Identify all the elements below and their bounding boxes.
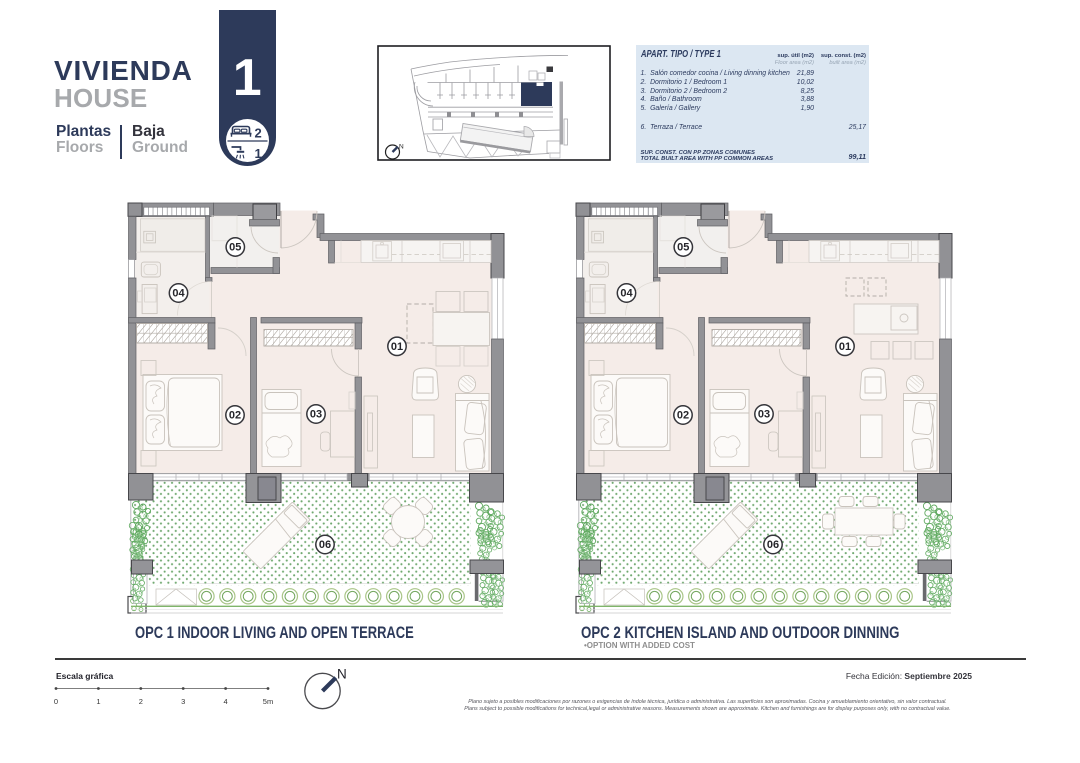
svg-text:N: N: [337, 667, 347, 682]
svg-text:4: 4: [224, 697, 228, 706]
svg-text:03: 03: [310, 409, 322, 421]
svg-text:2: 2: [139, 697, 143, 706]
svg-text:06: 06: [319, 539, 331, 551]
svg-text:3: 3: [181, 697, 185, 706]
svg-text:0: 0: [54, 697, 58, 706]
svg-text:05: 05: [229, 242, 241, 254]
svg-text:04: 04: [172, 288, 185, 300]
svg-text:1: 1: [96, 697, 100, 706]
svg-text:N: N: [399, 144, 404, 151]
svg-text:01: 01: [391, 341, 403, 353]
svg-text:02: 02: [229, 410, 241, 422]
svg-text:5m: 5m: [263, 697, 273, 706]
